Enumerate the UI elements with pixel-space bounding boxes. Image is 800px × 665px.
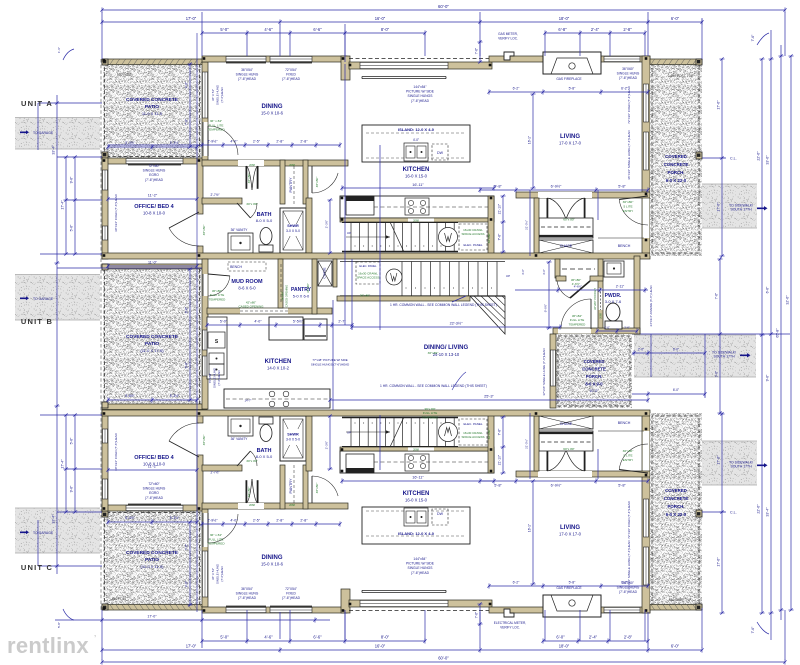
svg-text:36"x80": 36"x80" xyxy=(360,294,370,298)
svg-text:COVERED CONCRETE: COVERED CONCRETE xyxy=(126,334,179,340)
svg-text:2068: 2068 xyxy=(413,219,419,223)
svg-text:2068: 2068 xyxy=(289,163,295,167)
svg-text:9'-6": 9'-6" xyxy=(70,176,74,184)
svg-text:17-0 X 17-0: 17-0 X 17-0 xyxy=(559,141,582,146)
svg-text:10-8 X 10-0: 10-8 X 10-0 xyxy=(143,211,166,216)
svg-text:36"x80": 36"x80" xyxy=(306,283,310,293)
svg-text:2'-3½": 2'-3½" xyxy=(325,441,329,449)
svg-text:5'-8": 5'-8" xyxy=(57,622,61,628)
svg-text:C.L.: C.L. xyxy=(730,157,737,161)
svg-text:2068: 2068 xyxy=(413,448,419,452)
svg-text:2'-8": 2'-8" xyxy=(276,519,284,523)
svg-text:5'-0": 5'-0" xyxy=(220,27,229,32)
svg-text:UP: UP xyxy=(347,231,351,235)
svg-text:PICTURE W/ SIDE: PICTURE W/ SIDE xyxy=(406,90,435,94)
svg-text:PORCH.: PORCH. xyxy=(667,504,684,509)
svg-text:SINGLE HUNG: SINGLE HUNG xyxy=(617,72,640,76)
svg-text:2068: 2068 xyxy=(249,503,255,507)
svg-text:2'-0": 2'-0" xyxy=(638,348,644,352)
svg-text:16-0 X 15-0: 16-0 X 15-0 xyxy=(405,174,428,179)
svg-text:KITCHEN: KITCHEN xyxy=(265,359,292,365)
svg-text:60"x 80": 60"x 80" xyxy=(563,218,575,222)
svg-text:48"x80": 48"x80" xyxy=(315,177,319,188)
svg-text:PATIO: PATIO xyxy=(145,341,159,347)
svg-text:5'-8": 5'-8" xyxy=(494,483,502,487)
svg-text:9'-6": 9'-6" xyxy=(70,485,74,493)
svg-text:15-0 X 10-6: 15-0 X 10-6 xyxy=(261,111,284,116)
svg-text:2'-8": 2'-8" xyxy=(300,519,308,523)
svg-text:5'-8": 5'-8" xyxy=(618,483,626,487)
svg-text:3'-6": 3'-6" xyxy=(521,269,525,275)
svg-text:144"x54": 144"x54" xyxy=(413,557,427,561)
svg-text:8'-6": 8'-6" xyxy=(185,362,189,368)
svg-text:17'-6": 17'-6" xyxy=(717,202,721,212)
svg-text:3-0 X 7-6: 3-0 X 7-6 xyxy=(605,299,622,304)
svg-text:EGRO: EGRO xyxy=(149,491,159,495)
svg-text:(11-0 X 17-6): (11-0 X 17-6) xyxy=(140,348,164,353)
svg-text:PANTRY: PANTRY xyxy=(289,478,293,494)
svg-text:SINGLE HUNGS: SINGLE HUNGS xyxy=(408,94,434,98)
svg-text:(7'-6")HEAD: (7'-6")HEAD xyxy=(282,596,301,600)
svg-text:32'-6": 32'-6" xyxy=(786,295,790,305)
svg-text:OFFICE/ BED 4: OFFICE/ BED 4 xyxy=(134,455,174,461)
svg-text:48"x80": 48"x80" xyxy=(247,173,251,184)
svg-text:17'-6": 17'-6" xyxy=(717,557,721,567)
svg-text:6'-6": 6'-6" xyxy=(313,27,322,32)
svg-text:SINGLE HUNG: SINGLE HUNG xyxy=(236,73,259,77)
svg-text:7'-6": 7'-6" xyxy=(498,233,502,241)
svg-text:77"x48" PICTURE W/ SIDE: 77"x48" PICTURE W/ SIDE xyxy=(312,358,347,362)
svg-text:4'-0": 4'-0" xyxy=(413,138,419,142)
svg-text:8'-0": 8'-0" xyxy=(381,27,390,32)
svg-text:ISLAND: 12-0 X 4-0: ISLAND: 12-0 X 4-0 xyxy=(398,531,435,536)
svg-text:48"x80": 48"x80" xyxy=(247,487,251,498)
svg-text:33'-4": 33'-4" xyxy=(52,145,56,155)
svg-text:6'-0": 6'-0" xyxy=(556,635,565,640)
svg-text:TEMPERED: TEMPERED xyxy=(209,297,227,301)
svg-text:2'-11": 2'-11" xyxy=(616,285,625,289)
svg-text:15-0 X 10-6: 15-0 X 10-6 xyxy=(261,562,284,567)
svg-text:PATIO: PATIO xyxy=(145,557,159,563)
svg-text:4'-6": 4'-6" xyxy=(264,635,273,640)
svg-text:8-0 X 9-0: 8-0 X 9-0 xyxy=(585,382,603,387)
svg-text:5'-3½": 5'-3½" xyxy=(125,516,135,520)
svg-text:1 HR. COMMON WALL - SEE COMMON: 1 HR. COMMON WALL - SEE COMMON WALL LEGE… xyxy=(390,303,497,307)
svg-text:6'-0": 6'-0" xyxy=(671,644,680,649)
svg-text:7'-6": 7'-6" xyxy=(185,544,189,550)
svg-text:36"X36" SINGLE HUNG (7'-4")HEA: 36"X36" SINGLE HUNG (7'-4")HEAD xyxy=(627,539,631,589)
svg-text:2'-6": 2'-6" xyxy=(624,326,630,330)
svg-text:16'-11": 16'-11" xyxy=(412,476,424,480)
svg-text:6'-6": 6'-6" xyxy=(313,635,322,640)
svg-text:6'-2": 6'-2" xyxy=(513,87,521,91)
svg-text:11'-0": 11'-0" xyxy=(148,261,158,265)
svg-text:(7'-6")HEAD: (7'-6")HEAD xyxy=(145,178,164,182)
svg-text:9'-6": 9'-6" xyxy=(715,371,719,377)
svg-text:TO GARAGE: TO GARAGE xyxy=(33,531,54,535)
svg-text:5 LITE: 5 LITE xyxy=(623,204,632,208)
svg-text:UP: UP xyxy=(506,274,510,278)
svg-text:72"X54": 72"X54" xyxy=(285,587,298,591)
svg-text:5'-8": 5'-8" xyxy=(618,185,626,189)
svg-text:5'-3½": 5'-3½" xyxy=(125,141,135,145)
svg-text:5'-3½": 5'-3½" xyxy=(170,141,180,145)
svg-text:65'-8": 65'-8" xyxy=(776,328,780,338)
svg-text:(7'-6')HEAD: (7'-6')HEAD xyxy=(217,370,221,385)
svg-text:72"X36" FIXED (7'-4")HEAD: 72"X36" FIXED (7'-4")HEAD xyxy=(627,500,631,538)
svg-text:48"x80": 48"x80" xyxy=(315,483,319,494)
svg-text:DW: DW xyxy=(437,151,444,155)
svg-text:21'-3½": 21'-3½" xyxy=(525,220,529,230)
svg-text:16-0 X 15-0: 16-0 X 15-0 xyxy=(405,498,428,503)
svg-text:COVERED: COVERED xyxy=(665,154,687,159)
svg-text:UNIT A: UNIT A xyxy=(21,99,53,108)
svg-text:(7'-6")HEAD: (7'-6")HEAD xyxy=(619,590,638,594)
svg-text:(7'-6')HEAD: (7'-6')HEAD xyxy=(220,87,224,102)
svg-text:2'-9½": 2'-9½" xyxy=(207,519,218,523)
svg-text:5'-8½": 5'-8½" xyxy=(125,394,135,398)
svg-text:GAS METER,: GAS METER, xyxy=(498,32,518,36)
svg-text:17'-0": 17'-0" xyxy=(186,644,197,649)
svg-text:UNIT B: UNIT B xyxy=(21,317,53,326)
svg-text:ENTRY: ENTRY xyxy=(623,458,633,462)
svg-text:1 HR. COMMON WALL - SEE COMMON: 1 HR. COMMON WALL - SEE COMMON WALL LEGE… xyxy=(380,384,487,388)
svg-text:4'-6": 4'-6" xyxy=(264,27,273,32)
svg-text:4'-0": 4'-0" xyxy=(230,140,238,144)
svg-text:17-0 X 17-0: 17-0 X 17-0 xyxy=(559,532,582,537)
svg-text:SINGLE HUNG: SINGLE HUNG xyxy=(143,169,166,173)
svg-text:14'-7": 14'-7" xyxy=(244,399,251,403)
svg-text:EGRO: EGRO xyxy=(149,173,159,177)
svg-text:22'-6": 22'-6" xyxy=(757,151,761,161)
svg-text:PATIO: PATIO xyxy=(145,104,159,110)
svg-text:5'-0": 5'-0" xyxy=(220,320,228,324)
svg-text:PICTURE W/ SIDE: PICTURE W/ SIDE xyxy=(406,562,435,566)
svg-text:5'-8": 5'-8" xyxy=(569,87,577,91)
svg-text:2'-5": 2'-5" xyxy=(253,519,261,523)
svg-text:76"X54": 76"X54" xyxy=(208,373,212,383)
svg-text:10-8 X 10-0: 10-8 X 10-0 xyxy=(143,462,166,467)
svg-text:2'-4": 2'-4" xyxy=(589,635,598,640)
svg-text:7'-6": 7'-6" xyxy=(185,119,189,125)
svg-text:TEMPERED: TEMPERED xyxy=(422,415,440,419)
svg-text:660 POST: 660 POST xyxy=(117,73,132,77)
svg-text:8-0 X 5-0: 8-0 X 5-0 xyxy=(256,454,273,459)
svg-text:33'-4": 33'-4" xyxy=(766,507,770,517)
svg-text:CONCRETE: CONCRETE xyxy=(664,162,689,167)
svg-text:30"x 80": 30"x 80" xyxy=(246,202,258,206)
svg-text:36"X54": 36"X54" xyxy=(241,587,254,591)
svg-text:6'-2": 6'-2" xyxy=(513,581,521,585)
svg-text:30"X24" FIXED (7'-6")HEAD: 30"X24" FIXED (7'-6")HEAD xyxy=(114,432,118,470)
svg-text:FIXED: FIXED xyxy=(286,73,296,77)
svg-text:32"x80": 32"x80" xyxy=(487,233,491,244)
svg-text:16'-1": 16'-1" xyxy=(528,136,532,144)
svg-text:COVERED: COVERED xyxy=(665,488,687,493)
svg-text:17'-6": 17'-6" xyxy=(717,100,721,110)
svg-text:16'-0": 16'-0" xyxy=(375,16,386,21)
svg-text:CASED OPENING: CASED OPENING xyxy=(238,305,264,309)
svg-text:72"x60": 72"x60" xyxy=(148,164,160,168)
svg-text:2'-7½": 2'-7½" xyxy=(210,193,219,197)
svg-text:TEMPERED: TEMPERED xyxy=(207,542,225,546)
svg-text:SOUTH 17TH: SOUTH 17TH xyxy=(730,465,752,469)
svg-text:ELEC. PANEL: ELEC. PANEL xyxy=(463,243,482,247)
svg-text:5'-6": 5'-6" xyxy=(70,437,74,445)
svg-text:22'-3½": 22'-3½" xyxy=(450,322,463,326)
svg-text:21'-10": 21'-10" xyxy=(498,454,502,465)
svg-text:16'-11": 16'-11" xyxy=(412,183,424,187)
svg-text:6-0 X 22-0: 6-0 X 22-0 xyxy=(666,512,687,517)
svg-text:UP: UP xyxy=(347,431,351,435)
svg-text:17'-0": 17'-0" xyxy=(186,16,197,21)
svg-text:TEMPERED: TEMPERED xyxy=(207,128,225,132)
svg-text:2'-8": 2'-8" xyxy=(300,140,308,144)
svg-text:36"X54": 36"X54" xyxy=(241,68,254,72)
svg-text:DW: DW xyxy=(437,512,444,516)
svg-text:14-0 X 10-2: 14-0 X 10-2 xyxy=(267,366,290,371)
svg-text:30"x 80": 30"x 80" xyxy=(246,459,258,463)
svg-text:SOUTH 17TH: SOUTH 17TH xyxy=(730,208,752,212)
svg-text:PANTRY: PANTRY xyxy=(289,177,293,193)
svg-text:8'-6": 8'-6" xyxy=(185,307,189,313)
svg-text:(7'-6")HEAD: (7'-6")HEAD xyxy=(282,77,301,81)
svg-text:5'-5½": 5'-5½" xyxy=(293,320,304,324)
svg-text:60'-0": 60'-0" xyxy=(438,4,449,9)
svg-text:2068: 2068 xyxy=(289,503,295,507)
svg-text:BENCH: BENCH xyxy=(618,244,631,248)
svg-text:(7'-6')HEAD: (7'-6')HEAD xyxy=(220,566,224,581)
svg-text:72"X36" FIXED (7'-4")HEAD: 72"X36" FIXED (7'-4")HEAD xyxy=(627,85,631,123)
svg-text:4'-0": 4'-0" xyxy=(230,519,238,523)
svg-text:24"X3/4" AWNING (6'-6") HEAD: 24"X3/4" AWNING (6'-6") HEAD xyxy=(649,286,653,327)
svg-text:C.L.: C.L. xyxy=(730,511,737,515)
svg-text:LIVING: LIVING xyxy=(560,134,580,140)
svg-text:ELECTRICAL METER,: ELECTRICAL METER, xyxy=(494,621,527,625)
svg-text:7'-6": 7'-6" xyxy=(475,612,479,618)
svg-text:SINGLE HUNGS: SINGLE HUNGS xyxy=(408,566,434,570)
svg-text:1'-6": 1'-6" xyxy=(57,47,61,53)
svg-text:CONCRETE: CONCRETE xyxy=(664,496,689,501)
svg-text:36"x80": 36"x80" xyxy=(281,291,285,300)
svg-text:BENCH: BENCH xyxy=(230,265,242,269)
svg-text:7'-6": 7'-6" xyxy=(475,48,479,54)
svg-text:4'-6½": 4'-6½" xyxy=(572,282,580,286)
svg-text:SHWR: SHWR xyxy=(287,433,299,437)
svg-text:17'-4": 17'-4" xyxy=(61,459,65,469)
svg-text:17'-6": 17'-6" xyxy=(717,455,721,465)
svg-text:36"X36" SINGLE HUNG (7'-4")HEA: 36"X36" SINGLE HUNG (7'-4")HEAD xyxy=(627,129,631,179)
svg-text:36" VANITY: 36" VANITY xyxy=(231,437,249,441)
svg-text:1,660 POST, TYP.: 1,660 POST, TYP. xyxy=(668,74,694,78)
svg-text:72"X54": 72"X54" xyxy=(285,68,298,72)
svg-text:GAS FIREPLACE: GAS FIREPLACE xyxy=(556,77,581,81)
svg-text:7'-6": 7'-6" xyxy=(498,428,502,436)
svg-text:KITCHEN: KITCHEN xyxy=(403,167,430,173)
svg-text:(7'-6")HEAD: (7'-6")HEAD xyxy=(619,76,638,80)
svg-text:KITCHEN: KITCHEN xyxy=(403,491,430,497)
svg-text:MUD ROOM: MUD ROOM xyxy=(231,279,263,285)
svg-text:6'-6": 6'-6" xyxy=(766,286,770,294)
svg-text:CHASE: CHASE xyxy=(323,268,327,279)
svg-text:22'-6": 22'-6" xyxy=(757,504,761,514)
svg-text:5'-8": 5'-8" xyxy=(569,581,577,585)
svg-text:rentlinx: rentlinx xyxy=(7,633,89,658)
svg-text:2'-8": 2'-8" xyxy=(276,140,284,144)
svg-text:ELEC. PANEL: ELEC. PANEL xyxy=(359,264,377,268)
svg-text:SINGLE HUNG: SINGLE HUNG xyxy=(143,487,166,491)
svg-text:2'-8": 2'-8" xyxy=(624,635,633,640)
svg-text:36" X 54": 36" X 54" xyxy=(211,568,215,580)
svg-text:PORCH.: PORCH. xyxy=(586,374,602,379)
svg-text:2'-6": 2'-6" xyxy=(604,326,610,330)
svg-text:7'-6": 7'-6" xyxy=(715,293,719,299)
svg-text:UNIT C: UNIT C xyxy=(21,563,53,572)
svg-text:17'-4": 17'-4" xyxy=(61,200,65,210)
svg-text:LIVING: LIVING xyxy=(560,525,580,531)
svg-text:COVERED: COVERED xyxy=(584,359,605,364)
svg-text:5'-3½": 5'-3½" xyxy=(170,394,180,398)
svg-text:(7'-6")HEAD: (7'-6")HEAD xyxy=(238,596,257,600)
svg-text:5'-3½": 5'-3½" xyxy=(170,516,180,520)
svg-text:6'-0": 6'-0" xyxy=(671,16,680,21)
svg-text:’: ’ xyxy=(94,634,96,643)
svg-text:21'-10": 21'-10" xyxy=(498,203,502,214)
svg-text:TEMPERED: TEMPERED xyxy=(569,322,587,326)
svg-text:48"x80": 48"x80" xyxy=(202,435,206,446)
svg-text:6'-0": 6'-0" xyxy=(673,388,679,392)
svg-text:36"x80" POCKET: 36"x80" POCKET xyxy=(593,288,597,310)
svg-text:GAS FIREPLACE: GAS FIREPLACE xyxy=(556,586,581,590)
svg-text:3-0 X 5-0: 3-0 X 5-0 xyxy=(286,229,300,233)
svg-text:(7'-6")HEAD: (7'-6")HEAD xyxy=(411,99,430,103)
svg-text:33'-4": 33'-4" xyxy=(52,514,56,524)
svg-text:CHASE: CHASE xyxy=(560,244,573,248)
svg-text:25'-3": 25'-3" xyxy=(484,395,494,399)
svg-text:VERIFY LOC.: VERIFY LOC. xyxy=(498,36,518,40)
svg-text:660 POST: 660 POST xyxy=(112,597,127,601)
svg-text:33'-6": 33'-6" xyxy=(766,155,770,165)
svg-text:7'-6": 7'-6" xyxy=(751,626,755,634)
svg-text:ISLAND: 12-0 X 4-0: ISLAND: 12-0 X 4-0 xyxy=(398,127,435,132)
svg-text:COVERED CONCRETE: COVERED CONCRETE xyxy=(126,550,179,556)
svg-text:18'-0": 18'-0" xyxy=(559,644,570,649)
svg-text:CHASE: CHASE xyxy=(560,422,573,426)
svg-text:2'-8": 2'-8" xyxy=(623,27,632,32)
svg-text:(7'-6")HEAD: (7'-6")HEAD xyxy=(411,571,430,575)
svg-text:48"x80": 48"x80" xyxy=(202,225,206,236)
svg-text:4'-0": 4'-0" xyxy=(254,320,262,324)
svg-text:6'-8": 6'-8" xyxy=(558,27,567,32)
svg-text:18'-0": 18'-0" xyxy=(559,16,570,21)
svg-text:SHWR: SHWR xyxy=(287,224,299,228)
svg-text:8-0 X 5-0: 8-0 X 5-0 xyxy=(256,218,273,223)
svg-text:SPACE ACCESS: SPACE ACCESS xyxy=(462,435,485,439)
svg-text:2068: 2068 xyxy=(599,313,603,319)
svg-text:TO GARAGE: TO GARAGE xyxy=(33,131,54,135)
svg-text:SINGLE HUNGS (7'-6")HEAD: SINGLE HUNGS (7'-6")HEAD xyxy=(311,363,349,367)
svg-text:2'-7½": 2'-7½" xyxy=(210,471,219,475)
svg-text:TO GARAGE: TO GARAGE xyxy=(33,297,54,301)
svg-text:2'-4": 2'-4" xyxy=(591,27,600,32)
svg-text:37"x66" SINGLE HUNG (7'-6")HEA: 37"x66" SINGLE HUNG (7'-6")HEAD xyxy=(542,348,546,395)
svg-text:2068: 2068 xyxy=(249,163,255,167)
svg-text:36"x80": 36"x80" xyxy=(623,200,634,204)
svg-text:16'-0": 16'-0" xyxy=(375,644,386,649)
svg-text:11-0 X 11-0: 11-0 X 11-0 xyxy=(142,111,163,116)
svg-text:,660 POST, TYP.: ,660 POST, TYP. xyxy=(668,598,692,602)
svg-text:5-0 X 6-0: 5-0 X 6-0 xyxy=(293,294,310,299)
svg-text:32"x80": 32"x80" xyxy=(487,429,491,440)
svg-text:SINGLE HUNG: SINGLE HUNG xyxy=(213,367,217,388)
svg-text:SINGLE HUNG: SINGLE HUNG xyxy=(216,84,220,105)
svg-text:6-0 X 22-0: 6-0 X 22-0 xyxy=(666,178,687,183)
svg-text:5'-0": 5'-0" xyxy=(220,635,229,640)
svg-text:(11-0 X 11-0): (11-0 X 11-0) xyxy=(141,564,165,569)
svg-text:6'-0": 6'-0" xyxy=(673,348,679,352)
svg-text:FIXED: FIXED xyxy=(286,592,296,596)
svg-text:9'-6": 9'-6" xyxy=(766,374,770,382)
svg-text:DINING: DINING xyxy=(262,555,283,561)
svg-text:CONCRETE: CONCRETE xyxy=(582,367,606,372)
svg-text:36"X60": 36"X60" xyxy=(622,67,635,71)
svg-text:SINGLE HUNG: SINGLE HUNG xyxy=(236,592,259,596)
svg-text:4'-6": 4'-6" xyxy=(185,82,189,88)
svg-text:3'-6": 3'-6" xyxy=(542,269,546,275)
svg-text:2'-3½": 2'-3½" xyxy=(325,220,329,228)
svg-text:36"x80": 36"x80" xyxy=(428,351,439,355)
svg-text:ENTRY: ENTRY xyxy=(623,209,633,213)
svg-text:36"x80": 36"x80" xyxy=(623,449,634,453)
svg-text:PORCH.: PORCH. xyxy=(667,170,684,175)
svg-text:8'-0": 8'-0" xyxy=(381,635,390,640)
svg-text:SPACE ACCESS: SPACE ACCESS xyxy=(357,276,380,280)
svg-text:OFFICE/ BED 4: OFFICE/ BED 4 xyxy=(134,204,174,210)
svg-text:COVERED CONCRETE: COVERED CONCRETE xyxy=(126,97,179,103)
svg-text:BENCH: BENCH xyxy=(618,421,631,425)
svg-text:3-0 X 5-0: 3-0 X 5-0 xyxy=(286,438,300,442)
svg-text:(7'-6")HEAD: (7'-6")HEAD xyxy=(238,77,257,81)
svg-text:8-6 X 6-0: 8-6 X 6-0 xyxy=(238,286,256,291)
svg-text:DINING: DINING xyxy=(262,104,283,110)
svg-text:60"x 80": 60"x 80" xyxy=(563,447,575,451)
svg-text:21'-3½": 21'-3½" xyxy=(525,439,529,449)
svg-text:36" VANITY: 36" VANITY xyxy=(231,228,249,232)
svg-text:VERIFY LOC.: VERIFY LOC. xyxy=(500,625,520,629)
svg-text:SINGLE HUNG: SINGLE HUNG xyxy=(216,563,220,584)
svg-text:16'-1": 16'-1" xyxy=(528,524,532,532)
svg-text:11'-2": 11'-2" xyxy=(148,194,158,198)
svg-text:60'-0": 60'-0" xyxy=(438,656,449,661)
svg-text:SPACE ACCESS: SPACE ACCESS xyxy=(462,232,485,236)
svg-text:5 LITE: 5 LITE xyxy=(623,453,632,457)
svg-text:5'-6": 5'-6" xyxy=(70,224,74,232)
svg-text:9'-6½": 9'-6½" xyxy=(544,304,548,312)
svg-text:(7'-6")HEAD: (7'-6")HEAD xyxy=(145,496,164,500)
svg-text:2'-5": 2'-5" xyxy=(253,140,261,144)
svg-text:10'-0": 10'-0" xyxy=(589,389,599,393)
svg-text:30"X24" FIXED (7'-6")HEAD: 30"X24" FIXED (7'-6")HEAD xyxy=(114,193,118,231)
svg-text:7'-6": 7'-6" xyxy=(751,34,755,42)
svg-text:2'-9½": 2'-9½" xyxy=(207,140,218,144)
svg-text:17'-0": 17'-0" xyxy=(147,615,157,619)
svg-text:4'-6": 4'-6" xyxy=(185,581,189,587)
svg-text:SOUTH 17TH: SOUTH 17TH xyxy=(713,355,735,359)
svg-text:6'-9½": 6'-9½" xyxy=(551,185,562,189)
svg-text:144"x54": 144"x54" xyxy=(413,85,427,89)
svg-text:36" X 54": 36" X 54" xyxy=(211,89,215,101)
svg-text:ELEC. PANEL: ELEC. PANEL xyxy=(463,422,482,426)
